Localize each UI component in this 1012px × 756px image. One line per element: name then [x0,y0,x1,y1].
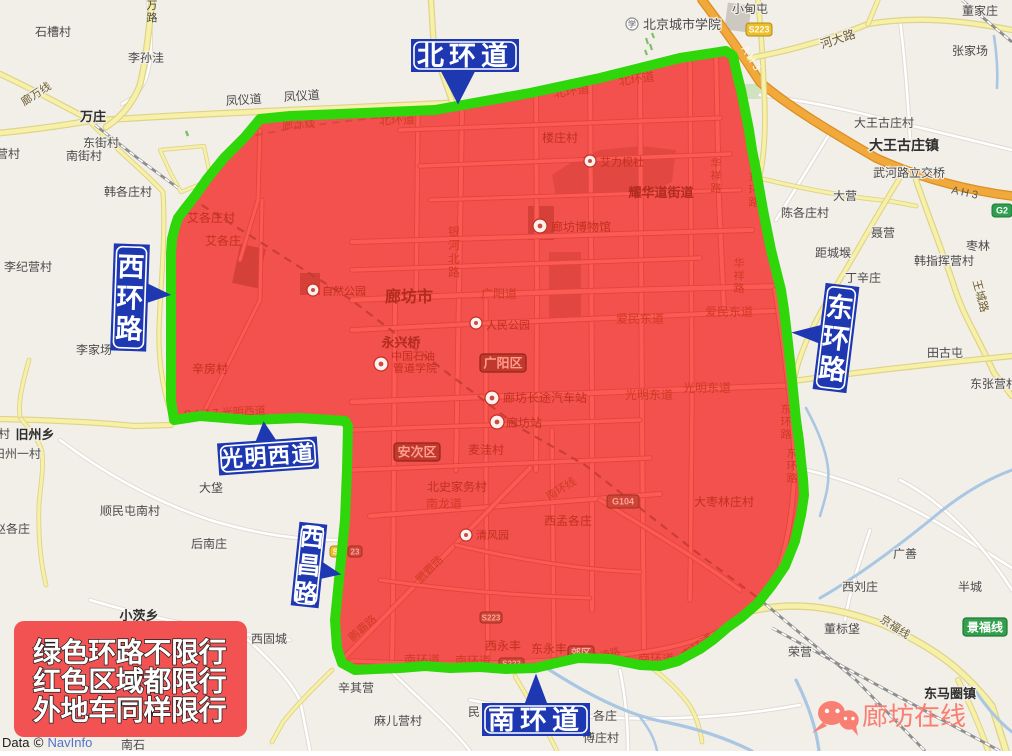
svg-text:北京城市学院: 北京城市学院 [643,14,721,33]
svg-text:南龙道: 南龙道 [426,495,462,512]
svg-text:自然公园: 自然公园 [322,283,366,299]
svg-text:爱民东道: 爱民东道 [705,303,753,320]
svg-text:辛其营: 辛其营 [338,679,374,696]
svg-text:韩指挥营村: 韩指挥营村 [914,252,974,269]
svg-text:东永丰: 东永丰 [531,640,567,657]
svg-text:廊坊博物馆: 廊坊博物馆 [551,218,611,235]
svg-text:路: 路 [787,470,798,486]
svg-text:Data © NavInfo: Data © NavInfo [2,732,92,751]
svg-text:外地车同样限行: 外地车同样限行 [33,689,227,729]
svg-text:西永丰: 西永丰 [485,637,521,654]
svg-text:旧州乡: 旧州乡 [15,424,54,443]
svg-text:路: 路 [734,280,745,296]
svg-text:大营: 大营 [833,187,857,204]
svg-text:楼庄村: 楼庄村 [542,129,578,146]
svg-text:艾力枧社: 艾力枧社 [600,154,644,170]
svg-text:田古屯: 田古屯 [927,344,963,361]
svg-text:23: 23 [351,546,360,557]
svg-text:大垡: 大垡 [199,479,223,496]
svg-text:后南庄: 后南庄 [191,535,227,552]
svg-text:爱民东道: 爱民东道 [616,310,664,327]
svg-text:石槽村: 石槽村 [35,23,71,40]
svg-text:S223: S223 [482,612,501,623]
svg-text:清风园: 清风园 [476,527,509,543]
svg-text:光明东道: 光明东道 [625,386,673,403]
svg-text:董家庄: 董家庄 [962,2,998,19]
svg-text:G2: G2 [996,204,1008,217]
svg-text:东张营村: 东张营村 [970,375,1012,392]
svg-text:韩各庄村: 韩各庄村 [104,183,152,200]
svg-text:广善: 广善 [893,545,917,562]
svg-text:路: 路 [147,10,158,26]
svg-text:廊坊长途汽车站: 廊坊长途汽车站 [503,389,587,406]
svg-text:廊坊市: 廊坊市 [385,283,433,307]
svg-text:李家场: 李家场 [76,341,112,358]
svg-text:南石: 南石 [121,736,145,751]
svg-text:北环道: 北环道 [417,34,513,73]
svg-text:聂营: 聂营 [871,224,895,241]
svg-text:西刘庄: 西刘庄 [842,578,878,595]
svg-text:路: 路 [711,180,722,196]
svg-text:广阳区: 广阳区 [483,353,522,372]
svg-text:各庄: 各庄 [593,707,617,724]
svg-text:旧州一村: 旧州一村 [0,445,41,462]
svg-text:赵各庄: 赵各庄 [0,520,30,537]
svg-text:李孙洼: 李孙洼 [128,49,164,66]
svg-text:管道学院: 管道学院 [393,360,437,376]
svg-text:西固城: 西固城 [251,630,287,647]
svg-text:北史家务村: 北史家务村 [427,478,487,495]
svg-text:李纪营村: 李纪营村 [4,258,52,275]
svg-text:陈各庄村: 陈各庄村 [781,204,829,221]
svg-text:艾各庄村: 艾各庄村 [187,209,235,226]
svg-text:丁辛庄: 丁辛庄 [845,269,881,286]
svg-text:路: 路 [448,263,460,280]
svg-text:路: 路 [115,307,144,347]
svg-text:麦洼村: 麦洼村 [468,441,504,458]
svg-text:距城堠: 距城堠 [815,244,851,261]
svg-text:艾各庄: 艾各庄 [205,232,241,249]
svg-text:南街村: 南街村 [66,147,102,164]
svg-text:广阳道: 广阳道 [481,285,517,302]
svg-text:麻儿营村: 麻儿营村 [374,712,422,729]
svg-text:大枣林庄村: 大枣林庄村 [694,493,754,510]
svg-text:S223: S223 [748,23,769,36]
svg-text:营村: 营村 [0,145,20,162]
svg-text:小甸屯: 小甸屯 [732,0,768,17]
svg-text:民: 民 [468,703,480,720]
svg-text:大王古庄村: 大王古庄村 [854,114,914,131]
svg-text:廊坊在线: 廊坊在线 [862,696,966,733]
svg-text:村: 村 [0,425,10,442]
svg-text:安次区: 安次区 [397,442,436,461]
svg-text:顺民屯南村: 顺民屯南村 [100,502,160,519]
svg-text:辛房村: 辛房村 [192,360,228,377]
svg-text:大王古庄镇: 大王古庄镇 [869,135,939,155]
svg-text:路: 路 [293,572,322,609]
svg-text:荣营: 荣营 [788,643,812,660]
svg-text:廊坊站: 廊坊站 [506,414,542,431]
svg-text:半城: 半城 [958,578,982,595]
svg-text:耀华道街道: 耀华道街道 [627,182,693,201]
svg-text:G104: G104 [612,495,634,508]
svg-text:光明西道: 光明西道 [219,436,316,475]
svg-text:万庄: 万庄 [79,106,106,125]
svg-text:凤仪道: 凤仪道 [283,86,320,105]
svg-text:景福线: 景福线 [967,618,1003,635]
svg-text:凤仪道: 凤仪道 [225,90,262,109]
svg-text:路: 路 [781,426,792,442]
svg-text:南环道: 南环道 [488,698,584,737]
svg-text:人民公园: 人民公园 [486,317,530,333]
svg-text:武河路立交桥: 武河路立交桥 [873,164,945,181]
svg-text:西孟各庄: 西孟各庄 [544,512,592,529]
svg-text:张家场: 张家场 [952,42,988,59]
svg-text:学: 学 [628,19,636,30]
svg-text:光明东道: 光明东道 [683,379,731,396]
svg-text:董标垡: 董标垡 [824,620,860,637]
